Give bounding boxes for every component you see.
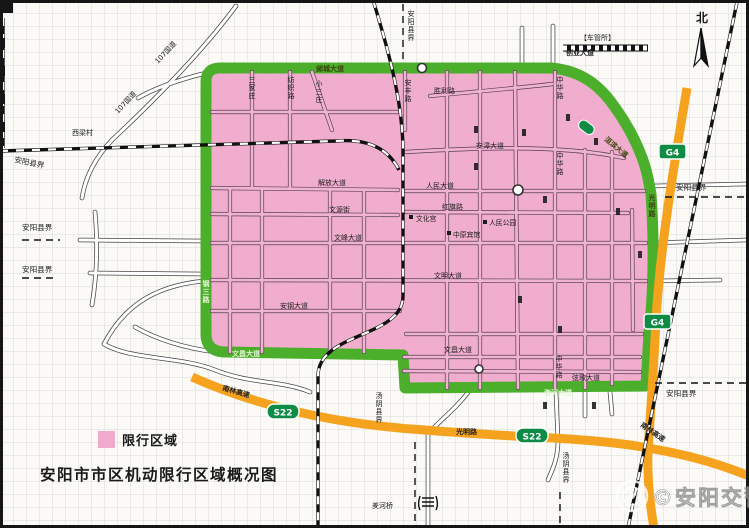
label-xiange-avenue: 弦歌大道 bbox=[572, 373, 600, 382]
label-gangsan-road: 钢三路 bbox=[202, 279, 211, 304]
zhongyuan-hotel-dot bbox=[447, 231, 451, 235]
legend-restricted-label: 限行区域 bbox=[122, 433, 178, 449]
s22-badge-label: S22 bbox=[273, 409, 292, 419]
label-wenchang-avenue: 文昌大道 bbox=[444, 345, 472, 354]
map-canvas: G4 G4 S22 S22 107国道 107国道 西梁村 安阳县界 安阳县界 … bbox=[0, 0, 749, 528]
s22-badge-2-label: S22 bbox=[522, 433, 541, 443]
label-tangyin-boundary-1: 汤阴县界 bbox=[375, 391, 383, 424]
label-xiaosanzhuang: 小三庄 bbox=[315, 79, 323, 104]
page-title: 安阳市市区机动限行区域概况图 bbox=[40, 465, 278, 484]
label-shengli-road: 胜利路 bbox=[434, 86, 455, 95]
anyang-restriction-map: G4 G4 S22 S22 107国道 107国道 西梁村 安阳县界 安阳县界 … bbox=[0, 0, 749, 528]
label-vehicle-admin-office: 【车管所】 bbox=[580, 33, 615, 42]
label-anyang-boundary-se: 安阳县界 bbox=[666, 388, 697, 398]
label-renmin-avenue: 人民大道 bbox=[426, 181, 454, 190]
label-anyang-boundary-top: 安阳县界 bbox=[407, 9, 415, 42]
label-xiliangcun: 西梁村 bbox=[72, 128, 93, 137]
label-jiefang-avenue: 解放大道 bbox=[318, 178, 346, 187]
label-guangming-road-green: 光明路 bbox=[648, 193, 657, 218]
label-zhonghua-road-s: 中华路 bbox=[555, 354, 563, 379]
label-zhongyuan-hotel: 中原宾馆 bbox=[453, 230, 480, 239]
label-anyang-boundary-w2: 安阳县界 bbox=[22, 264, 53, 274]
watermark-text: ©安阳交警 bbox=[652, 486, 749, 510]
label-wenchang-avenue-w: 文昌大道 bbox=[232, 349, 260, 358]
g4-badge-2-label: G4 bbox=[651, 319, 665, 329]
label-hongqi-road: 红旗路 bbox=[442, 202, 463, 211]
culture-palace-dot bbox=[409, 215, 413, 219]
label-culture-palace: 文化宫 bbox=[416, 214, 437, 223]
peoples-park-dot bbox=[483, 220, 487, 224]
legend-swatch-restricted bbox=[98, 431, 115, 448]
label-anfeng-road: 安丰路 bbox=[404, 78, 412, 103]
label-wenming-avenue: 文明大道 bbox=[434, 271, 462, 280]
label-chuangye-avenue: 创业大道 bbox=[565, 48, 594, 57]
label-peoples-park: 人民公园 bbox=[489, 219, 516, 227]
label-guangming-road-orange: 光明路 bbox=[455, 427, 478, 436]
compass-north-label: 北 bbox=[696, 10, 708, 25]
label-anyang-boundary-w1: 安阳县界 bbox=[22, 222, 53, 232]
label-wenyuan-street: 文源街 bbox=[329, 205, 350, 214]
label-youhe-bridge: 羑河桥 bbox=[372, 501, 393, 510]
legend: 限行区域 bbox=[98, 431, 178, 449]
label-yecheng-avenue: 邺城大道 bbox=[316, 64, 344, 73]
label-zhonghua-road-m: 中华路 bbox=[556, 151, 564, 176]
label-tangyin-boundary-2: 汤阴县界 bbox=[562, 451, 570, 484]
label-wenfeng-avenue: 文峰大道 bbox=[334, 233, 362, 242]
label-haihe-avenue: 海河大道 bbox=[544, 388, 572, 397]
label-angang-avenue: 安钢大道 bbox=[280, 301, 308, 310]
label-anzhang-avenue: 安漳大道 bbox=[476, 141, 504, 150]
g4-badge-label: G4 bbox=[666, 149, 680, 159]
label-zhonghua-road-n: 中华路 bbox=[556, 75, 564, 100]
label-fangzhi-road: 纺织路 bbox=[287, 75, 295, 100]
label-sanjiazhuang: 三家庄 bbox=[248, 76, 256, 100]
label-anyang-boundary-e: 安阳县界 bbox=[676, 182, 707, 192]
